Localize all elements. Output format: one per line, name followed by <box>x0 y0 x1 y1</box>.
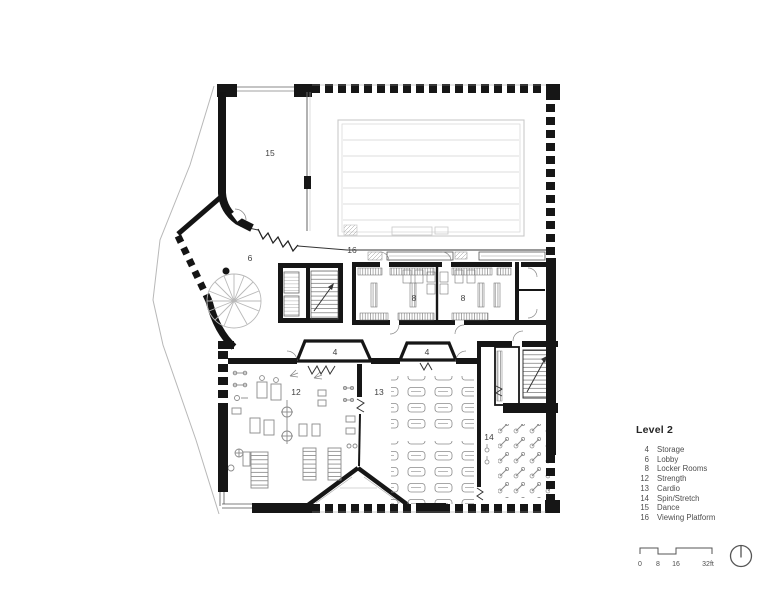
scale-tick-32ft: 32ft <box>702 561 714 568</box>
legend-num: 14 <box>636 494 649 504</box>
room-label-strength: 12 <box>291 387 301 397</box>
spin-bikes <box>485 424 550 498</box>
legend-label: Dance <box>657 503 680 513</box>
scale-tick-8: 8 <box>656 561 660 568</box>
legend-label: Viewing Platform <box>657 513 715 523</box>
checkered-wall-bottom-right <box>446 504 546 513</box>
legend-label: Lobby <box>657 455 678 465</box>
legend-label: Strength <box>657 474 686 484</box>
checkered-wall-bottom <box>312 504 416 513</box>
room-label-locker-left: 8 <box>412 293 417 303</box>
checkered-wall-left <box>218 343 228 407</box>
scale-tick-16: 16 <box>672 561 680 568</box>
corridor-equipment <box>290 370 322 379</box>
legend-item-locker-rooms: 8 Locker Rooms <box>636 464 766 474</box>
service-rooms <box>519 268 545 318</box>
room-label-storage-right: 4 <box>425 347 430 357</box>
door-swing <box>455 325 464 334</box>
door-swing <box>513 331 523 341</box>
spiral-stair <box>207 274 261 328</box>
room-label-viewing-platform: 16 <box>347 245 357 255</box>
door-gap <box>235 211 241 219</box>
room-label-spin: 14 <box>484 432 494 442</box>
legend-item-dance: 15 Dance <box>636 503 766 513</box>
door-fold <box>420 363 432 370</box>
legend-item-viewing-platform: 16 Viewing Platform <box>636 513 766 523</box>
pool-steps <box>344 225 357 235</box>
legend-item-cardio: 13 Cardio <box>636 484 766 494</box>
legend-item-strength: 12 Strength <box>636 474 766 484</box>
elevator-cab <box>284 296 299 316</box>
elevator-cab <box>284 272 299 293</box>
room-label-storage-left: 4 <box>333 347 338 357</box>
scale-tick-0: 0 <box>638 561 642 568</box>
legend-label: Spin/Stretch <box>657 494 699 504</box>
curved-wall <box>222 92 252 228</box>
legend-num: 12 <box>636 474 649 484</box>
main-stair <box>311 271 338 319</box>
legend-heading: Level 2 <box>636 424 766 436</box>
legend-num: 16 <box>636 513 649 523</box>
floor-plan-page: 15 6 16 8 8 4 4 12 13 14 0 8 16 32ft Lev… <box>0 0 780 603</box>
platform-equipment <box>368 252 382 260</box>
legend-item-lobby: 6 Lobby <box>636 455 766 465</box>
checkered-wall <box>178 236 209 301</box>
legend-num: 4 <box>636 445 649 455</box>
pool-hall <box>338 120 524 236</box>
legend: Level 2 4 Storage 6 Lobby 8 Locker Rooms… <box>636 424 766 523</box>
checkered-wall-top <box>312 84 546 93</box>
legend-num: 15 <box>636 503 649 513</box>
column <box>223 268 230 275</box>
locker-rooms <box>352 252 546 334</box>
legend-num: 8 <box>636 464 649 474</box>
legend-label: Cardio <box>657 484 680 494</box>
door-fold <box>308 366 335 374</box>
cardio-machines <box>391 376 474 504</box>
benches <box>371 283 500 307</box>
legend-label: Storage <box>657 445 684 455</box>
legend-label: Locker Rooms <box>657 464 707 474</box>
room-label-dance: 15 <box>265 148 275 158</box>
checkered-wall-right-lower <box>546 455 555 500</box>
checkered-wall-right <box>546 100 555 258</box>
legend-num: 6 <box>636 455 649 465</box>
platform-equipment <box>455 252 467 259</box>
scale-bar: 0 8 16 32ft <box>638 548 714 568</box>
room-label-lobby: 6 <box>248 253 253 263</box>
legend-item-spin-stretch: 14 Spin/Stretch <box>636 494 766 504</box>
door-swing <box>390 325 399 334</box>
door-fold <box>477 488 483 500</box>
folding-partition <box>258 229 298 251</box>
legend-item-storage: 4 Storage <box>636 445 766 455</box>
door-fold <box>357 399 364 412</box>
legend-num: 13 <box>636 484 649 494</box>
room-label-cardio: 13 <box>374 387 384 397</box>
north-arrow-icon <box>731 545 752 567</box>
room-label-locker-right: 8 <box>461 293 466 303</box>
